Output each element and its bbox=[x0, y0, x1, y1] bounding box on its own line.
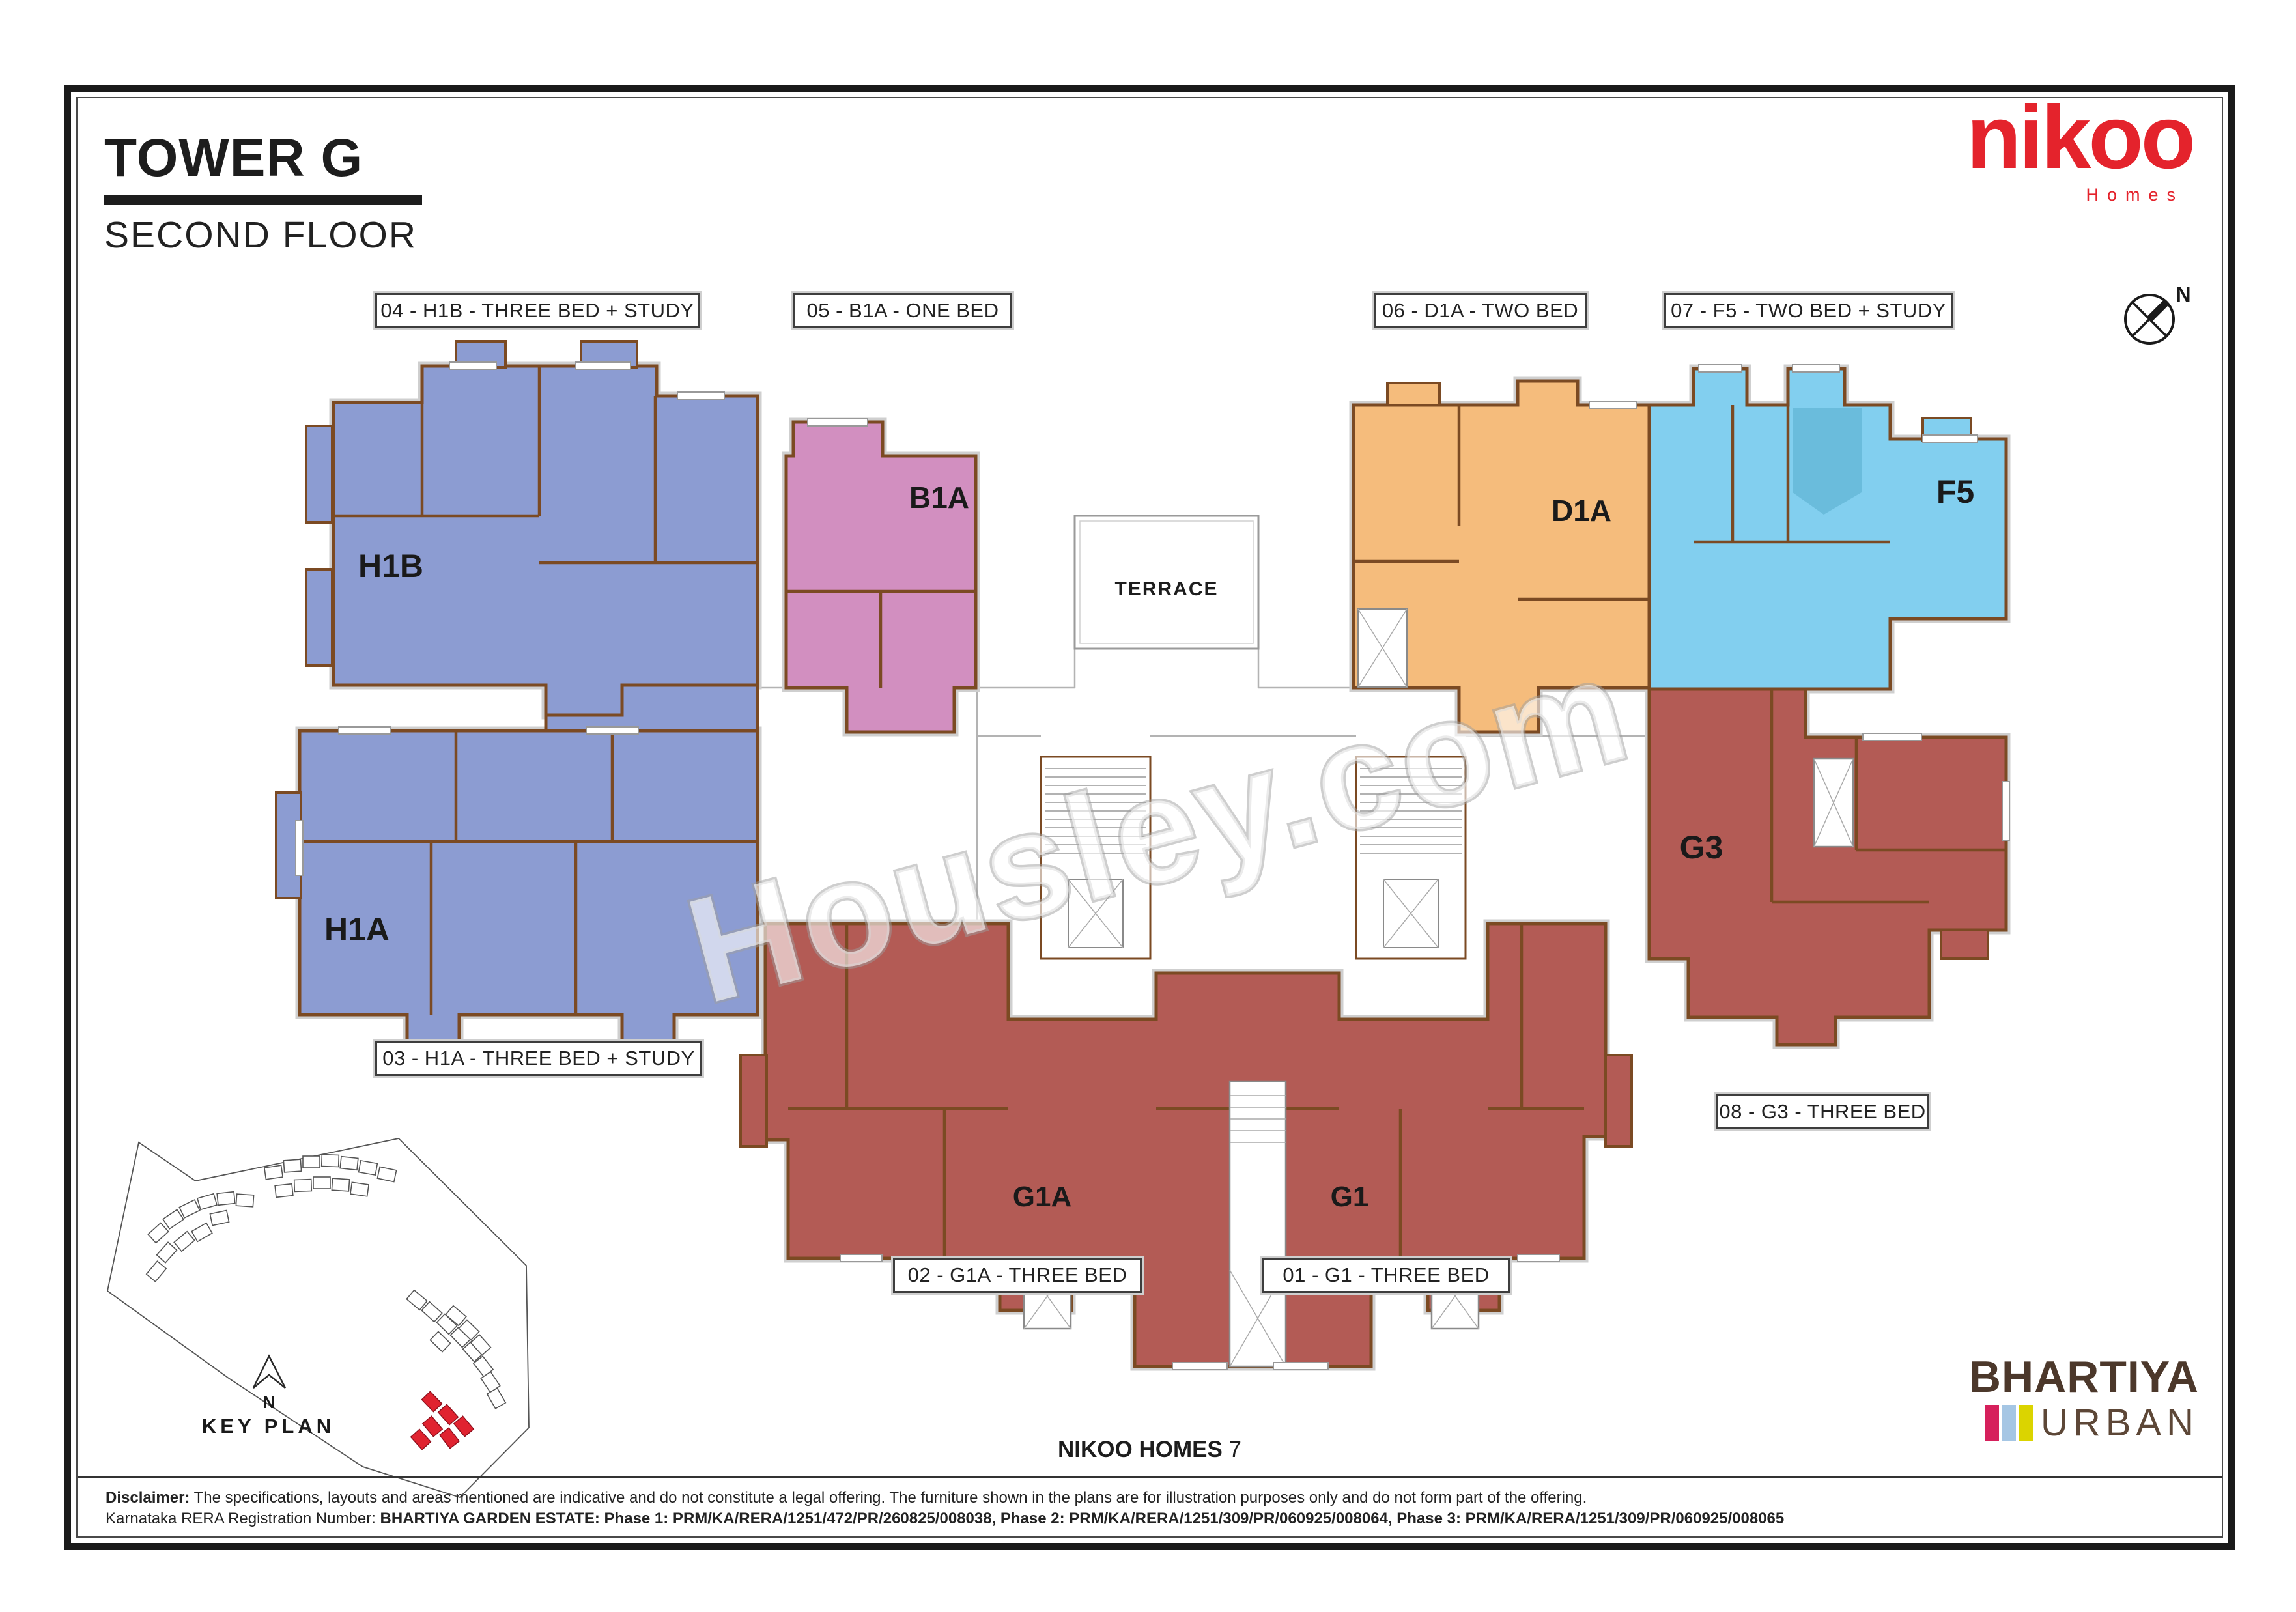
key-plan-north-label: N bbox=[263, 1393, 276, 1412]
disclaimer-line: Disclaimer: The specifications, layouts … bbox=[106, 1489, 1587, 1507]
footer-separator bbox=[78, 1476, 2222, 1478]
unit-label-b1a: B1A bbox=[909, 481, 969, 515]
floorplan-sheet: TOWER G SECOND FLOOR nikoo Homes bbox=[0, 0, 2296, 1612]
project-number: 7 bbox=[1229, 1437, 1241, 1462]
unit-tag-06-d1a: 06 - D1A - TWO BED bbox=[1374, 293, 1587, 328]
key-plan-north-icon bbox=[253, 1356, 285, 1388]
unit-tag-02-g1a: 02 - G1A - THREE BED bbox=[893, 1258, 1142, 1293]
central-shaft bbox=[1230, 1081, 1286, 1366]
unit-b1a bbox=[786, 419, 976, 732]
unit-label-h1b: H1B bbox=[358, 548, 423, 584]
disclaimer-text: The specifications, layouts and areas me… bbox=[190, 1489, 1587, 1506]
key-plan-title: KEY PLAN bbox=[202, 1415, 335, 1437]
urban-wordmark: URBAN bbox=[2041, 1404, 2199, 1442]
unit-label-g3: G3 bbox=[1680, 829, 1723, 866]
key-plan-buildings bbox=[147, 1155, 506, 1409]
bar-yellow bbox=[2019, 1405, 2033, 1441]
shaft bbox=[1358, 609, 1407, 687]
unit-label-d1a: D1A bbox=[1552, 494, 1611, 528]
terrace: TERRACE bbox=[1075, 516, 1258, 649]
bhartiya-wordmark: BHARTIYA bbox=[1969, 1355, 2199, 1399]
compass-icon: N bbox=[2125, 283, 2191, 343]
compass-north-label: N bbox=[2176, 283, 2190, 306]
unit-tag-08-g3: 08 - G3 - THREE BED bbox=[1716, 1094, 1929, 1129]
rera-numbers: BHARTIYA GARDEN ESTATE: Phase 1: PRM/KA/… bbox=[380, 1510, 1785, 1527]
bhartiya-urban-logo: BHARTIYA URBAN bbox=[1969, 1355, 2199, 1442]
disclaimer-label: Disclaimer: bbox=[106, 1489, 190, 1506]
rera-line: Karnataka RERA Registration Number: BHAR… bbox=[106, 1510, 1784, 1528]
unit-tag-01-g1: 01 - G1 - THREE BED bbox=[1262, 1258, 1510, 1293]
project-name-bold: NIKOO HOMES bbox=[1058, 1437, 1223, 1462]
unit-f5 bbox=[1649, 365, 2006, 689]
unit-tag-07-f5: 07 - F5 - TWO BED + STUDY bbox=[1664, 293, 1953, 328]
bar-crimson bbox=[1985, 1405, 1999, 1441]
unit-tag-04-h1b: 04 - H1B - THREE BED + STUDY bbox=[375, 293, 700, 328]
shaft bbox=[1814, 759, 1853, 847]
key-plan: N KEY PLAN bbox=[107, 1138, 529, 1497]
terrace-label: TERRACE bbox=[1114, 578, 1218, 600]
key-plan-highlighted-tower bbox=[411, 1391, 474, 1449]
rera-label: Karnataka RERA Registration Number: bbox=[106, 1510, 380, 1527]
unit-tag-03-h1a: 03 - H1A - THREE BED + STUDY bbox=[375, 1041, 702, 1076]
unit-label-g1: G1 bbox=[1331, 1181, 1369, 1213]
unit-g3 bbox=[1649, 689, 2009, 1045]
bhartiya-color-bars-icon bbox=[1985, 1405, 2033, 1441]
unit-label-g1a: G1A bbox=[1013, 1181, 1071, 1213]
bar-blue bbox=[2002, 1405, 2016, 1441]
unit-tag-05-b1a: 05 - B1A - ONE BED bbox=[793, 293, 1012, 328]
unit-label-h1a: H1A bbox=[324, 911, 390, 948]
floor-plan-drawing: TERRACE H1B B1A D1A F5 H1A G3 G1A G1 N bbox=[0, 0, 2296, 1612]
unit-label-f5: F5 bbox=[1936, 474, 1974, 510]
project-name: NIKOO HOMES 7 bbox=[977, 1437, 1322, 1463]
